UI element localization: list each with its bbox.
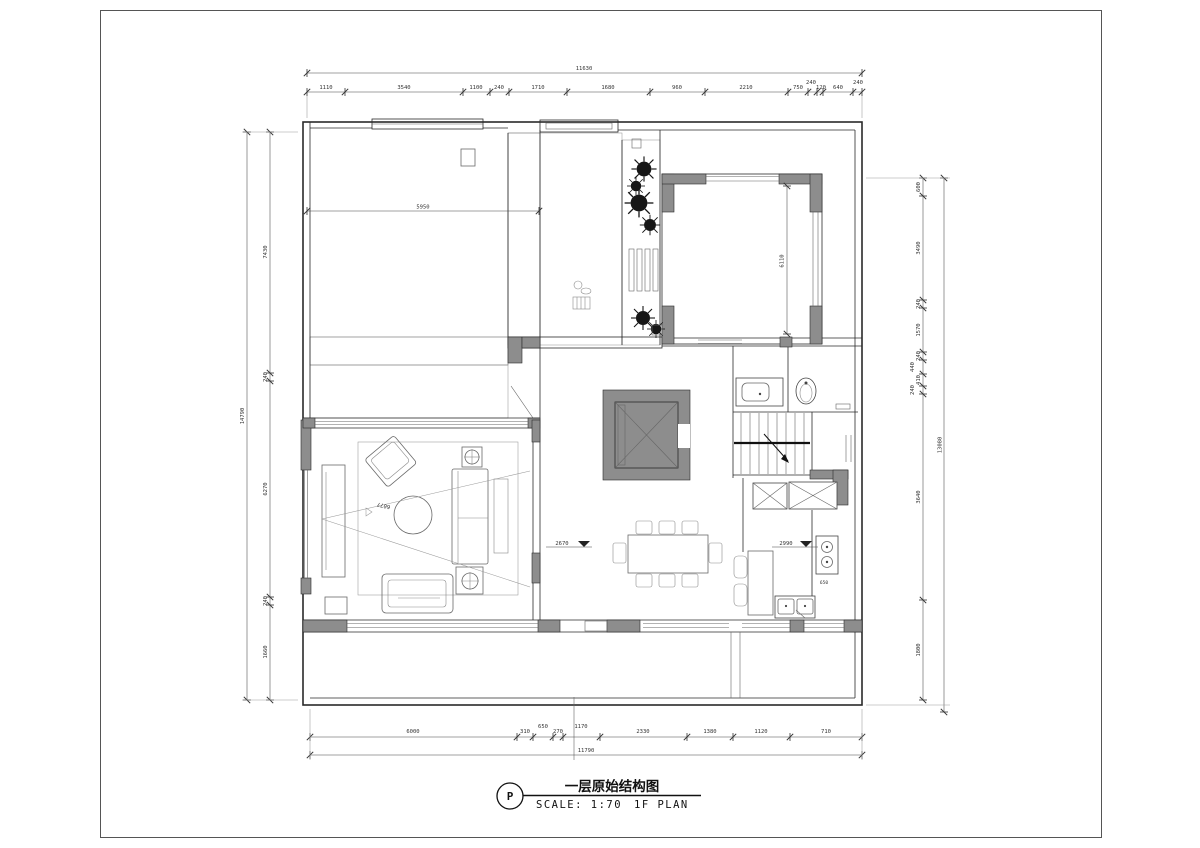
dim-label: 1120 xyxy=(754,729,767,735)
dim-label: 310 xyxy=(520,729,530,735)
dim-label: 240 xyxy=(916,299,922,309)
dim-label: 1380 xyxy=(703,729,716,735)
dim-label: 2330 xyxy=(636,729,649,735)
living-furniture xyxy=(322,435,530,614)
annotation-level-dining: 2670 xyxy=(555,541,568,547)
dim-label: 240 xyxy=(910,385,916,395)
dim-label: 240 xyxy=(263,372,269,382)
entry-figure xyxy=(573,281,591,309)
annotation-living-diagonal: 6077 xyxy=(377,501,391,510)
dim-label: 240 xyxy=(263,596,269,606)
dim-label: 1170 xyxy=(574,724,587,730)
dim-label: 1100 xyxy=(469,85,482,91)
dim-label: 240 xyxy=(806,80,816,86)
dim-label: 710 xyxy=(821,729,831,735)
annotation-room-width: 5950 xyxy=(416,205,429,211)
elevator-shaft xyxy=(603,390,690,480)
dimension-chain-bottom: 6000 310 650 270 1170 2330 1380 1120 710… xyxy=(307,709,865,760)
dim-label: 1680 xyxy=(601,85,614,91)
dim-label: 440 xyxy=(910,362,916,372)
dim-label: 240 xyxy=(853,80,863,86)
dim-label: 240 xyxy=(916,351,922,361)
dim-total-label: 11790 xyxy=(578,748,595,754)
dim-label: 6000 xyxy=(406,729,419,735)
plan-symbol: P xyxy=(507,790,514,803)
dim-label: 120 xyxy=(816,85,826,91)
dim-label: 7430 xyxy=(263,245,269,258)
dim-label: 1710 xyxy=(531,85,544,91)
dim-label: 960 xyxy=(672,85,682,91)
dimension-chain-right: 600 3490 240 1570 240 440 410 240 3640 1… xyxy=(866,175,950,715)
dim-label: 3490 xyxy=(916,241,922,254)
dim-label: 2210 xyxy=(739,85,752,91)
hatch-areas xyxy=(310,133,660,418)
annotation-courtyard-height: 6110 xyxy=(780,254,786,267)
drawing-title: 一层原始结构图 xyxy=(565,778,660,794)
scale-label: SCALE: 1:70 xyxy=(536,799,622,811)
dim-label: 750 xyxy=(793,85,803,91)
dim-label: 270 xyxy=(553,729,563,735)
dim-label: 600 xyxy=(916,182,922,192)
dim-label: 1110 xyxy=(319,85,332,91)
annotation-level-kitchen: 2990 xyxy=(779,541,792,547)
dim-total-label: 13080 xyxy=(938,437,944,454)
dimension-chain-top: 11630 1110 3540 1100 240 1710 1680 960 2… xyxy=(304,66,865,118)
windows xyxy=(305,119,852,631)
dimension-chain-left: 7430 240 6270 240 1660 14790 xyxy=(240,129,298,703)
dim-label: 3640 xyxy=(916,490,922,503)
dim-label: 640 xyxy=(833,85,843,91)
dim-label: 6270 xyxy=(263,482,269,495)
dim-label: 240 xyxy=(494,85,504,91)
annotation-counter-depth: 650 xyxy=(820,580,828,586)
dim-label: 410 xyxy=(916,375,922,385)
dim-label: 1570 xyxy=(916,323,922,336)
dim-label: 3540 xyxy=(397,85,410,91)
plan-label: 1F PLAN xyxy=(634,799,689,811)
title-block: P 一层原始结构图 SCALE: 1:70 1F PLAN xyxy=(497,778,701,811)
staircase xyxy=(734,413,810,474)
dim-total-label: 11630 xyxy=(576,66,593,72)
dim-label: 1800 xyxy=(916,643,922,656)
kitchen-fixtures xyxy=(734,482,838,618)
bathroom-fixtures xyxy=(736,378,850,409)
dim-label: 1660 xyxy=(263,645,269,658)
dim-total-label: 14790 xyxy=(240,408,246,425)
sheet-border xyxy=(101,11,1102,838)
dim-label: 650 xyxy=(538,724,548,730)
drawing-sheet: 5950 6110 6077 2670 2990 650 11630 1110 … xyxy=(0,0,1200,848)
dining-furniture xyxy=(613,521,722,587)
plants xyxy=(461,139,665,338)
floor-plan-canvas: 5950 6110 6077 2670 2990 650 11630 1110 … xyxy=(0,0,1200,848)
